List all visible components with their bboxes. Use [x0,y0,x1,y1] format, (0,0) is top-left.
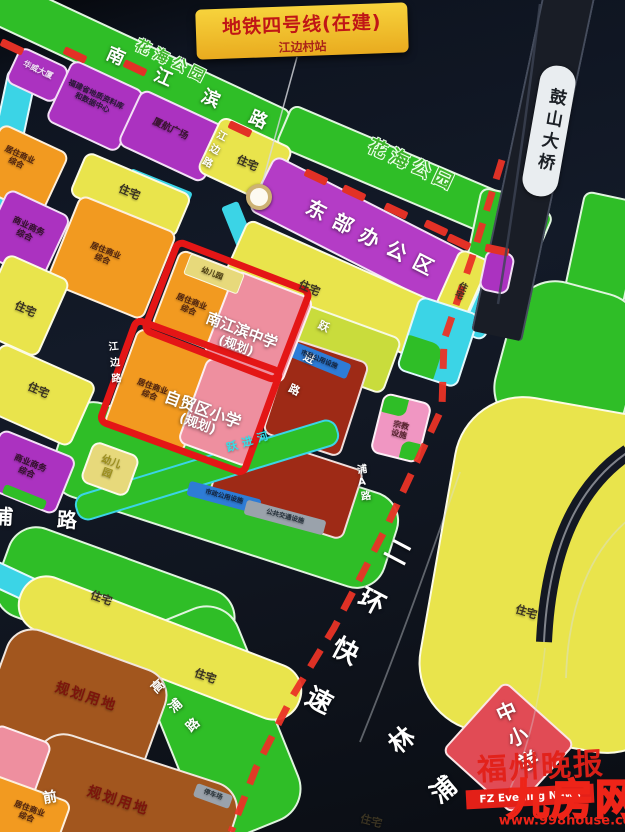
watermark-url: www.998house.com [499,815,625,830]
metro-station-marker [246,184,272,210]
road-label-gushan-bridge: 鼓山大桥 [532,86,567,176]
planning-map: 花海公园 花海公园 南江滨路 江边路 江边路 浦A路 跃进路 浦路 二环快速 林… [0,0,625,832]
metro-line-banner: 地铁四号线(在建) 江边村站 [195,2,409,59]
road-label-qian: 前 [42,789,59,807]
